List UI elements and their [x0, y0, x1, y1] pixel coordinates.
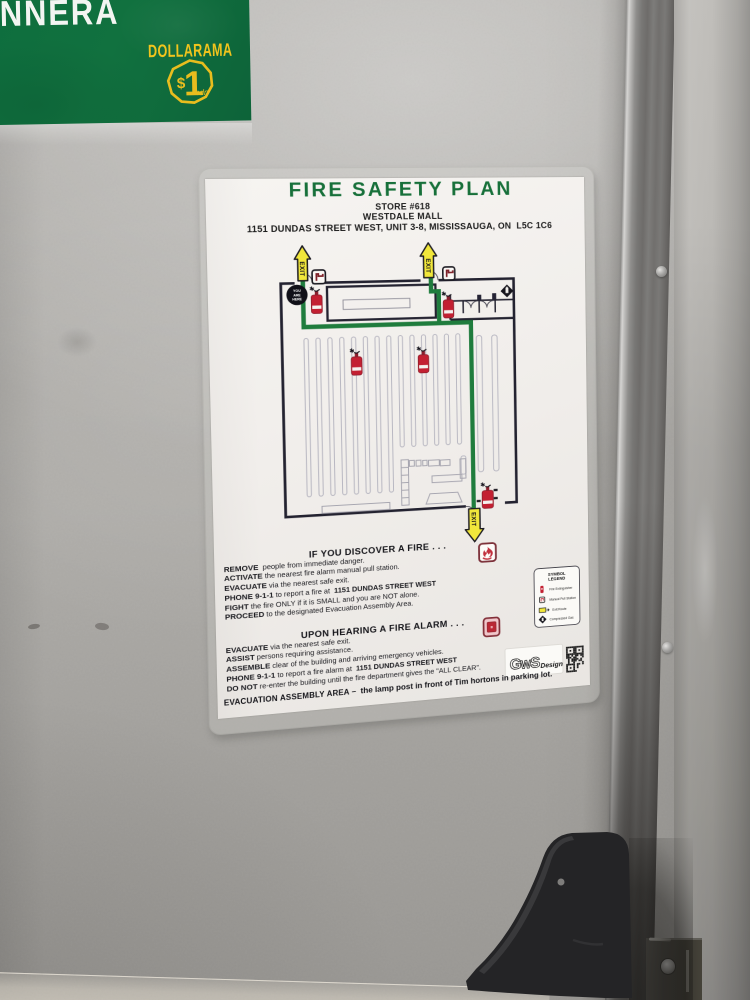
svg-text:cdn: cdn — [195, 88, 209, 97]
svg-text:HERE: HERE — [292, 297, 302, 301]
svg-text:EXIT: EXIT — [298, 261, 305, 276]
svg-text:1: 1 — [184, 65, 204, 103]
svg-text:EXIT: EXIT — [470, 512, 477, 527]
svg-text:NNERA: NNERA — [0, 0, 120, 35]
svg-text:EXIT: EXIT — [424, 259, 431, 274]
